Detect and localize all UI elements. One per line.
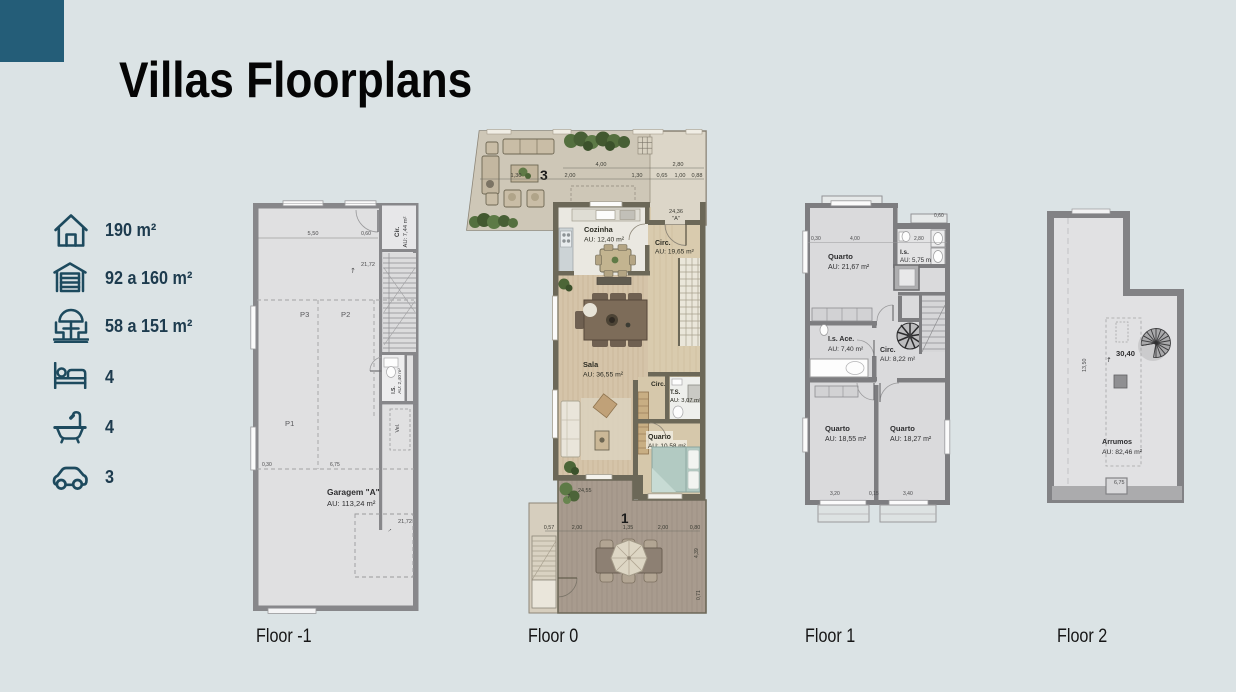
svg-text:0,71: 0,71 — [696, 590, 702, 600]
svg-text:4,00: 4,00 — [596, 162, 607, 168]
svg-text:21,72: 21,72 — [361, 262, 375, 268]
svg-text:Cozinha: Cozinha — [584, 225, 614, 234]
svg-text:Cir.: Cir. — [394, 227, 401, 238]
svg-text:0,60: 0,60 — [934, 213, 944, 219]
svg-text:1,35: 1,35 — [623, 525, 634, 531]
svg-text:24,36: 24,36 — [669, 209, 683, 215]
svg-text:13,50: 13,50 — [1082, 359, 1088, 373]
svg-text:AU: 2,40 m²: AU: 2,40 m² — [397, 368, 403, 394]
svg-text:1,30: 1,30 — [511, 173, 522, 179]
svg-text:AU: 18,55 m²: AU: 18,55 m² — [825, 436, 867, 443]
svg-text:Vel.: Vel. — [395, 424, 401, 433]
svg-text:"A": "A" — [672, 216, 680, 222]
svg-text:3,20: 3,20 — [830, 491, 840, 497]
svg-text:AU: 7,40 m²: AU: 7,40 m² — [828, 346, 864, 353]
svg-text:AU: 12,40 m²: AU: 12,40 m² — [584, 237, 625, 244]
svg-text:1,00: 1,00 — [675, 173, 686, 179]
svg-text:3,40: 3,40 — [903, 491, 913, 497]
svg-text:2,80: 2,80 — [673, 162, 684, 168]
svg-text:P2: P2 — [341, 310, 350, 319]
svg-text:2,00: 2,00 — [658, 525, 669, 531]
svg-text:3: 3 — [540, 167, 548, 183]
svg-text:AU: 8,22 m²: AU: 8,22 m² — [880, 356, 916, 363]
svg-text:P3: P3 — [300, 310, 309, 319]
svg-text:AU: 113,24 m²: AU: 113,24 m² — [327, 499, 376, 508]
svg-text:Quarto: Quarto — [648, 434, 671, 441]
svg-text:1: 1 — [621, 511, 629, 526]
svg-text:AU: 21,67 m²: AU: 21,67 m² — [828, 264, 870, 271]
svg-text:Circ.: Circ. — [651, 381, 666, 388]
svg-text:0,30: 0,30 — [811, 236, 821, 242]
svg-text:Quarto: Quarto — [828, 252, 853, 261]
svg-text:Garagem "A": Garagem "A" — [327, 487, 380, 497]
svg-text:30,40: 30,40 — [1116, 349, 1135, 358]
svg-text:Circ.: Circ. — [880, 347, 896, 354]
svg-text:AU: 3,07 m²: AU: 3,07 m² — [670, 398, 701, 404]
svg-text:I.s. Ace.: I.s. Ace. — [828, 336, 854, 343]
svg-text:P1: P1 — [285, 419, 294, 428]
svg-text:2,80: 2,80 — [914, 236, 924, 242]
svg-text:I.s.: I.s. — [900, 249, 909, 256]
svg-text:I.S.: I.S. — [391, 386, 397, 394]
svg-text:4,39: 4,39 — [694, 548, 700, 558]
svg-text:T.S.: T.S. — [670, 390, 681, 396]
svg-text:Quarto: Quarto — [890, 424, 915, 433]
svg-text:AU: 19,65 m²: AU: 19,65 m² — [655, 249, 695, 256]
svg-text:2,00: 2,00 — [565, 173, 576, 179]
svg-text:0,60: 0,60 — [361, 231, 371, 237]
svg-text:Quarto: Quarto — [825, 424, 850, 433]
svg-text:2,00: 2,00 — [572, 525, 583, 531]
svg-text:Sala: Sala — [583, 360, 599, 369]
svg-text:0,30: 0,30 — [262, 462, 272, 468]
svg-text:Circ.: Circ. — [655, 240, 671, 247]
svg-text:AU: 5,75 m²: AU: 5,75 m² — [900, 257, 933, 264]
svg-text:0,15: 0,15 — [869, 491, 879, 497]
svg-text:0,57: 0,57 — [544, 525, 555, 531]
svg-text:6,75: 6,75 — [330, 462, 340, 468]
svg-text:AU: 82,46 m²: AU: 82,46 m² — [1102, 449, 1143, 456]
svg-text:24,55: 24,55 — [578, 488, 592, 494]
svg-text:0,88: 0,88 — [692, 173, 703, 179]
svg-text:4,00: 4,00 — [850, 236, 860, 242]
svg-text:AU: 7,44 m²: AU: 7,44 m² — [403, 216, 409, 247]
svg-text:AU: 18,27 m²: AU: 18,27 m² — [890, 436, 932, 443]
svg-text:0,80: 0,80 — [690, 525, 701, 531]
svg-text:6,75: 6,75 — [1114, 480, 1125, 486]
svg-text:21,72: 21,72 — [398, 519, 412, 525]
svg-text:Arrumos: Arrumos — [1102, 437, 1132, 446]
svg-text:AU: 36,55 m²: AU: 36,55 m² — [583, 372, 624, 379]
svg-text:5,50: 5,50 — [308, 231, 319, 237]
svg-text:0,65: 0,65 — [657, 173, 668, 179]
svg-text:1,30: 1,30 — [632, 173, 643, 179]
